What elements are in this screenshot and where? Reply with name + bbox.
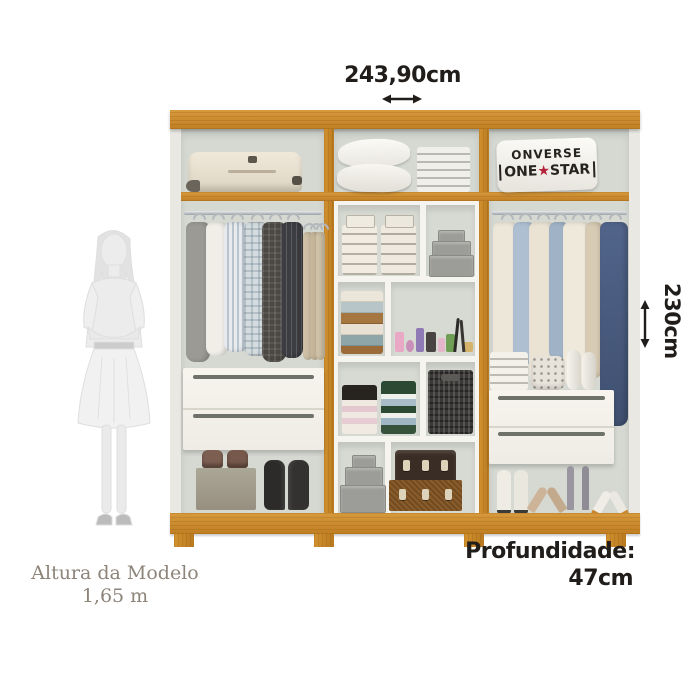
rolled-towel	[582, 352, 596, 390]
height-dimension-arrow	[638, 300, 652, 348]
width-dimension-label: 243,90cm	[330, 63, 475, 88]
folded-clothes-stack	[381, 381, 416, 434]
model-height-caption: Altura da Modelo 1,65 m	[15, 562, 215, 608]
folded-linens-stack	[490, 352, 528, 390]
suitcase-handle	[228, 170, 276, 173]
right-drawer-unit	[489, 390, 614, 464]
makeup-brush	[453, 318, 460, 352]
suitcase-wheel	[186, 180, 200, 192]
storage-trunk	[395, 450, 456, 481]
left-side-panel	[170, 129, 181, 513]
product-image: 243,90cm	[0, 0, 700, 700]
depth-dimension-block: Profundidade: 47cm	[440, 538, 635, 592]
drawer-handle[interactable]	[498, 432, 605, 436]
brand-bag-text-top: ONVERSE	[496, 145, 596, 162]
folded-linens-stack	[381, 225, 416, 275]
gray-heel-shoe	[567, 466, 574, 510]
drawer-handle[interactable]	[193, 375, 314, 379]
wardrobe-foot	[174, 534, 194, 547]
gray-heel-shoe	[582, 466, 589, 510]
suitcase	[188, 152, 302, 192]
wardrobe-foot	[314, 534, 334, 547]
gray-shoe-box	[196, 468, 256, 510]
brand-bag: ONVERSE ONE★STAR	[496, 137, 598, 192]
star-icon: ★	[537, 163, 550, 179]
perfume-bottle	[395, 332, 404, 352]
column-divider	[324, 129, 334, 513]
makeup-brush	[460, 320, 466, 352]
left-drawer-unit	[183, 368, 324, 450]
wardrobe-top-panel	[170, 110, 640, 129]
model-silhouette	[58, 227, 170, 537]
width-dimension-arrow	[381, 92, 423, 106]
towel-stack	[341, 291, 383, 354]
gray-box	[340, 485, 386, 513]
perfume-bottle	[438, 338, 445, 352]
basket-handle	[441, 374, 460, 381]
black-boot	[288, 460, 309, 510]
woven-basket	[428, 370, 473, 434]
top-shelf	[181, 192, 629, 201]
folded-linens-stack	[342, 225, 377, 275]
suitcase-strap	[292, 176, 302, 185]
folded-linen-top	[346, 215, 375, 228]
column-divider	[479, 129, 489, 513]
depth-dimension-title: Profundidade:	[440, 538, 635, 565]
black-boot	[264, 460, 285, 510]
model-height-line1: Altura da Modelo	[15, 562, 215, 585]
hanging-dark-striped-jacket	[281, 222, 303, 358]
model-height-line2: 1,65 m	[15, 585, 215, 608]
rolled-towel	[567, 350, 581, 390]
studded-bag	[531, 356, 565, 390]
hanging-trousers	[316, 232, 325, 360]
folded-linen-top	[385, 215, 414, 228]
brand-bag-text-bottom: ONE★STAR	[497, 161, 597, 180]
depth-dimension-value: 47cm	[440, 565, 635, 592]
cosmetics-row	[393, 320, 473, 354]
folded-linens-stack	[417, 147, 470, 192]
pillow	[337, 163, 411, 192]
white-bootie	[497, 470, 511, 514]
suitcase-latch	[248, 156, 257, 163]
brown-loafer	[202, 450, 223, 468]
wardrobe-base	[170, 513, 640, 534]
perfume-bottle	[406, 340, 414, 352]
drawer-handle[interactable]	[498, 396, 605, 400]
perfume-bottle	[416, 328, 424, 352]
storage-trunk	[389, 480, 462, 511]
drawer-handle[interactable]	[193, 414, 314, 418]
drawer-gap	[183, 408, 324, 410]
brown-loafer	[227, 450, 248, 468]
height-dimension-label: 230cm	[660, 283, 684, 353]
perfume-bottle	[426, 332, 436, 352]
drawer-gap	[489, 426, 614, 428]
folded-clothes-stack	[342, 385, 377, 434]
gray-box	[429, 255, 474, 277]
